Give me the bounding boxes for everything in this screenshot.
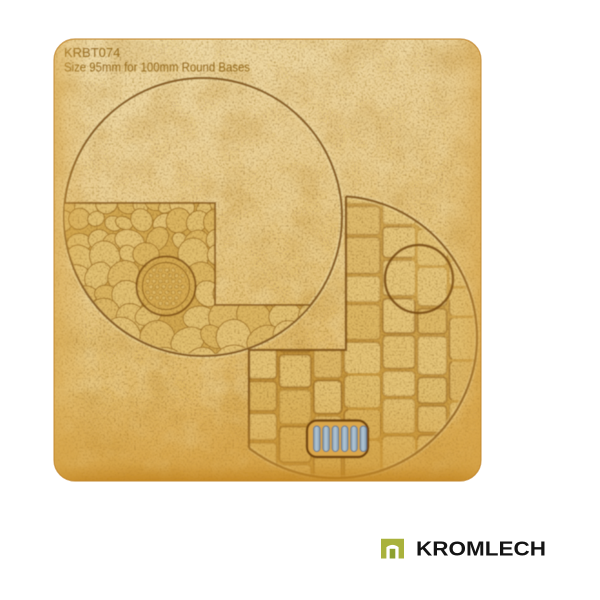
svg-text:KROMLECH: KROMLECH: [416, 539, 546, 561]
